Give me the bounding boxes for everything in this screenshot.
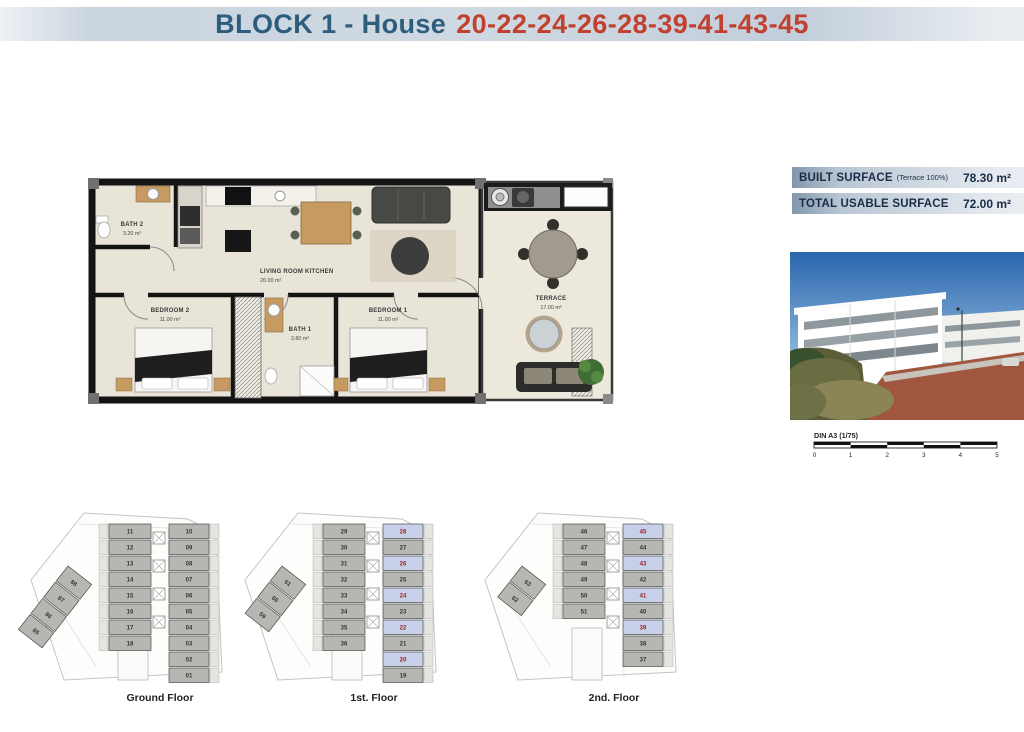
- room-label-bath2: BATH 2: [121, 222, 144, 228]
- usable-surface-row: TOTAL USABLE SURFACE 72.00 m²: [792, 193, 1024, 214]
- unit-cell: 28: [383, 524, 423, 539]
- house-numbers: 20-22-24-26-28-39-41-43-45: [456, 9, 809, 40]
- unit-number: 24: [400, 594, 407, 600]
- unit-number: 49: [581, 578, 588, 584]
- unit-cell: 20: [383, 652, 423, 667]
- unit-number: 32: [341, 578, 348, 584]
- usable-surface-value: 72.00 m²: [963, 197, 1011, 211]
- unit-number: 07: [186, 578, 193, 584]
- unit-cell: 04: [169, 620, 209, 635]
- unit-cell: 32: [323, 572, 365, 587]
- built-surface-value: 78.30 m²: [963, 171, 1011, 185]
- mini-floorplan-svg: 1112131415161718100908070605040302018887…: [18, 510, 248, 688]
- unit-number: 39: [640, 626, 647, 632]
- unit-cell: 24: [383, 588, 423, 603]
- unit-number: 27: [400, 546, 407, 552]
- room-area-terrace: 17.00 m²: [540, 305, 561, 311]
- unit-number: 34: [341, 610, 348, 616]
- elevator-core: [367, 560, 379, 572]
- unit-number: 47: [581, 546, 588, 552]
- unit-number: 11: [127, 530, 134, 536]
- unit-number: 06: [186, 594, 193, 600]
- unit-cell: 09: [169, 540, 209, 555]
- unit-number: 18: [127, 642, 134, 648]
- unit-number: 02: [186, 658, 193, 664]
- unit-cell: 06: [169, 588, 209, 603]
- unit-cell: 50: [563, 588, 605, 603]
- unit-cell: 18: [109, 636, 151, 651]
- unit-cell: 29: [323, 524, 365, 539]
- unit-number: 23: [400, 610, 407, 616]
- building-photo-art: [790, 252, 1024, 420]
- unit-cell: 10: [169, 524, 209, 539]
- usable-surface-label: TOTAL USABLE SURFACE: [799, 198, 949, 210]
- unit-number: 33: [341, 594, 348, 600]
- unit-cell: 13: [109, 556, 151, 571]
- dining-set: [291, 202, 362, 244]
- unit-cell: 42: [623, 572, 663, 587]
- unit-number: 43: [640, 562, 647, 568]
- unit-cell: 31: [323, 556, 365, 571]
- living-area: [370, 187, 456, 282]
- room-area-bath1: 3.80 m²: [291, 336, 309, 342]
- unit-cell: 37: [623, 652, 663, 667]
- unit-cell: 49: [563, 572, 605, 587]
- unit-cell: 30: [323, 540, 365, 555]
- unit-cell: 08: [169, 556, 209, 571]
- bath2-toilet-icon: [98, 222, 110, 238]
- unit-cell: 41: [623, 588, 663, 603]
- bath1-sink-icon: [268, 304, 280, 316]
- building-photo: [790, 252, 1024, 420]
- unit-cell: 11: [109, 524, 151, 539]
- room-label-terrace: TERRACE: [536, 296, 567, 302]
- second-floor-label: 2nd. Floor: [564, 692, 664, 704]
- ground-floor-label: Ground Floor: [110, 692, 210, 704]
- kitchen-counter: [206, 186, 316, 206]
- elevator-core: [153, 532, 165, 544]
- unit-cell: 16: [109, 604, 151, 619]
- scalebar: DIN A3 (1/75) 0 1 2 3 4 5: [813, 429, 1013, 461]
- tick-2: 2: [885, 452, 889, 459]
- unit-number: 17: [127, 626, 134, 632]
- tick-1: 1: [849, 452, 853, 459]
- built-surface-note: (Terrace 100%): [897, 173, 948, 182]
- unit-cell: 07: [169, 572, 209, 587]
- room-label-bath1: BATH 1: [289, 327, 312, 333]
- unit-number: 38: [640, 642, 647, 648]
- unit-cell: 12: [109, 540, 151, 555]
- unit-cell: 25: [383, 572, 423, 587]
- unit-cell: 47: [563, 540, 605, 555]
- first-floor-plan: 1st. Floor 29303132333435362827262524232…: [232, 510, 462, 706]
- unit-number: 21: [400, 642, 407, 648]
- unit-cell: 35: [323, 620, 365, 635]
- surfaces-table: BUILT SURFACE (Terrace 100%) 78.30 m² TO…: [792, 167, 1024, 219]
- unit-cell: 03: [169, 636, 209, 651]
- unit-cell: 34: [323, 604, 365, 619]
- unit-number: 50: [581, 594, 588, 600]
- elevator-core: [367, 532, 379, 544]
- unit-number: 10: [186, 530, 193, 536]
- unit-cell: 01: [169, 668, 209, 683]
- unit-number: 35: [341, 626, 348, 632]
- scalebar-ticks: 0 1 2 3 4 5: [813, 452, 999, 459]
- unit-number: 14: [127, 578, 134, 584]
- room-area-bedroom2: 11.00 m²: [160, 317, 181, 323]
- room-area-bath2: 3.20 m²: [123, 231, 141, 237]
- room-area-bedroom1: 11.00 m²: [378, 317, 399, 323]
- unit-number: 01: [186, 674, 193, 680]
- elevator-core: [607, 532, 619, 544]
- unit-number: 48: [581, 562, 588, 568]
- built-surface-label: BUILT SURFACE: [799, 172, 893, 184]
- sink-icon: [275, 191, 285, 201]
- unit-cell: 05: [169, 604, 209, 619]
- unit-number: 25: [400, 578, 407, 584]
- brochure-page: { "header": { "title": "BLOCK 1 - House"…: [0, 0, 1024, 732]
- unit-number: 09: [186, 546, 193, 552]
- tick-5: 5: [995, 452, 999, 459]
- unit-number: 15: [127, 594, 134, 600]
- unit-number: 05: [186, 610, 193, 616]
- unit-number: 45: [640, 530, 647, 536]
- dining-table: [301, 202, 351, 244]
- unit-cell: 19: [383, 668, 423, 683]
- unit-cell: 22: [383, 620, 423, 635]
- unit-cell: 48: [563, 556, 605, 571]
- unit-number: 44: [640, 546, 647, 552]
- elevator-core: [367, 616, 379, 628]
- unit-cell: 17: [109, 620, 151, 635]
- unit-number: 46: [581, 530, 588, 536]
- terrace-table: [529, 230, 577, 278]
- elevator-core: [607, 616, 619, 628]
- tick-4: 4: [959, 452, 963, 459]
- unit-cell: 02: [169, 652, 209, 667]
- tick-0: 0: [813, 452, 817, 459]
- unit-number: 28: [400, 530, 407, 536]
- unit-cell: 21: [383, 636, 423, 651]
- unit-cell: 44: [623, 540, 663, 555]
- unit-number: 51: [581, 610, 588, 616]
- unit-cell: 51: [563, 604, 605, 619]
- unit-number: 40: [640, 610, 647, 616]
- second-floor-plan: 2nd. Floor 46474849505145444342414039383…: [472, 510, 702, 706]
- unit-number: 37: [640, 658, 647, 664]
- unit-cell: 40: [623, 604, 663, 619]
- main-floorplan: BATH 2 3.20 m² LIVING ROOM KITCHEN 26.00…: [88, 178, 618, 404]
- unit-cell: 23: [383, 604, 423, 619]
- built-surface-row: BUILT SURFACE (Terrace 100%) 78.30 m²: [792, 167, 1024, 188]
- scalebar-label: DIN A3 (1/75): [814, 431, 859, 440]
- lobby-core: [572, 628, 602, 680]
- room-label-bedroom1: BEDROOM 1: [369, 308, 408, 314]
- unit-cell: 46: [563, 524, 605, 539]
- unit-number: 13: [127, 562, 134, 568]
- tick-3: 3: [922, 452, 926, 459]
- room-area-living: 26.00 m²: [260, 278, 281, 284]
- elevator-core: [153, 560, 165, 572]
- unit-number: 30: [341, 546, 348, 552]
- unit-cell: 15: [109, 588, 151, 603]
- unit-number: 22: [400, 626, 407, 632]
- unit-cell: 27: [383, 540, 423, 555]
- room-label-bedroom2: BEDROOM 2: [151, 308, 190, 314]
- elevator-core: [367, 588, 379, 600]
- sofa-icon: [372, 187, 450, 223]
- unit-number: 26: [400, 562, 407, 568]
- first-floor-label: 1st. Floor: [324, 692, 424, 704]
- wardrobe: [235, 297, 261, 398]
- bath2-sink-icon: [148, 189, 159, 200]
- unit-cell: 45: [623, 524, 663, 539]
- stove-icon: [225, 187, 251, 205]
- ground-floor-plan: Ground Floor 111213141516171810090807060…: [18, 510, 248, 706]
- unit-number: 31: [341, 562, 348, 568]
- round-rug: [391, 237, 429, 275]
- title-bar: BLOCK 1 - House 20-22-24-26-28-39-41-43-…: [0, 7, 1024, 41]
- lounger: [529, 319, 559, 349]
- unit-number: 20: [400, 658, 407, 664]
- unit-number: 03: [186, 642, 193, 648]
- elevator-core: [607, 588, 619, 600]
- unit-cell: 33: [323, 588, 365, 603]
- unit-number: 16: [127, 610, 134, 616]
- unit-number: 12: [127, 546, 134, 552]
- elevator-core: [607, 560, 619, 572]
- mini-floorplan-svg: 4647484950514544434241403938376362: [472, 510, 702, 688]
- terrace-utility: [484, 183, 612, 211]
- unit-number: 36: [341, 642, 348, 648]
- room-label-living: LIVING ROOM KITCHEN: [260, 269, 333, 275]
- main-floorplan-container: BATH 2 3.20 m² LIVING ROOM KITCHEN 26.00…: [88, 178, 618, 409]
- unit-number: 04: [186, 626, 193, 632]
- unit-number: 29: [341, 530, 348, 536]
- page-title: BLOCK 1 - House: [215, 9, 446, 40]
- unit-number: 42: [640, 578, 647, 584]
- elevator-core: [153, 588, 165, 600]
- unit-cell: 38: [623, 636, 663, 651]
- car: [1002, 358, 1019, 366]
- unit-number: 19: [400, 674, 407, 680]
- elevator-core: [153, 616, 165, 628]
- kitchen-island: [225, 230, 251, 252]
- unit-number: 41: [640, 594, 647, 600]
- unit-cell: 43: [623, 556, 663, 571]
- unit-number: 08: [186, 562, 193, 568]
- unit-cell: 14: [109, 572, 151, 587]
- bath1-toilet-icon: [265, 368, 277, 384]
- scalebar-container: DIN A3 (1/75) 0 1 2 3 4 5: [813, 429, 1013, 466]
- unit-cell: 36: [323, 636, 365, 651]
- unit-cell: 26: [383, 556, 423, 571]
- mini-floorplan-svg: 2930313233343536282726252423222120196160…: [232, 510, 462, 688]
- unit-cell: 39: [623, 620, 663, 635]
